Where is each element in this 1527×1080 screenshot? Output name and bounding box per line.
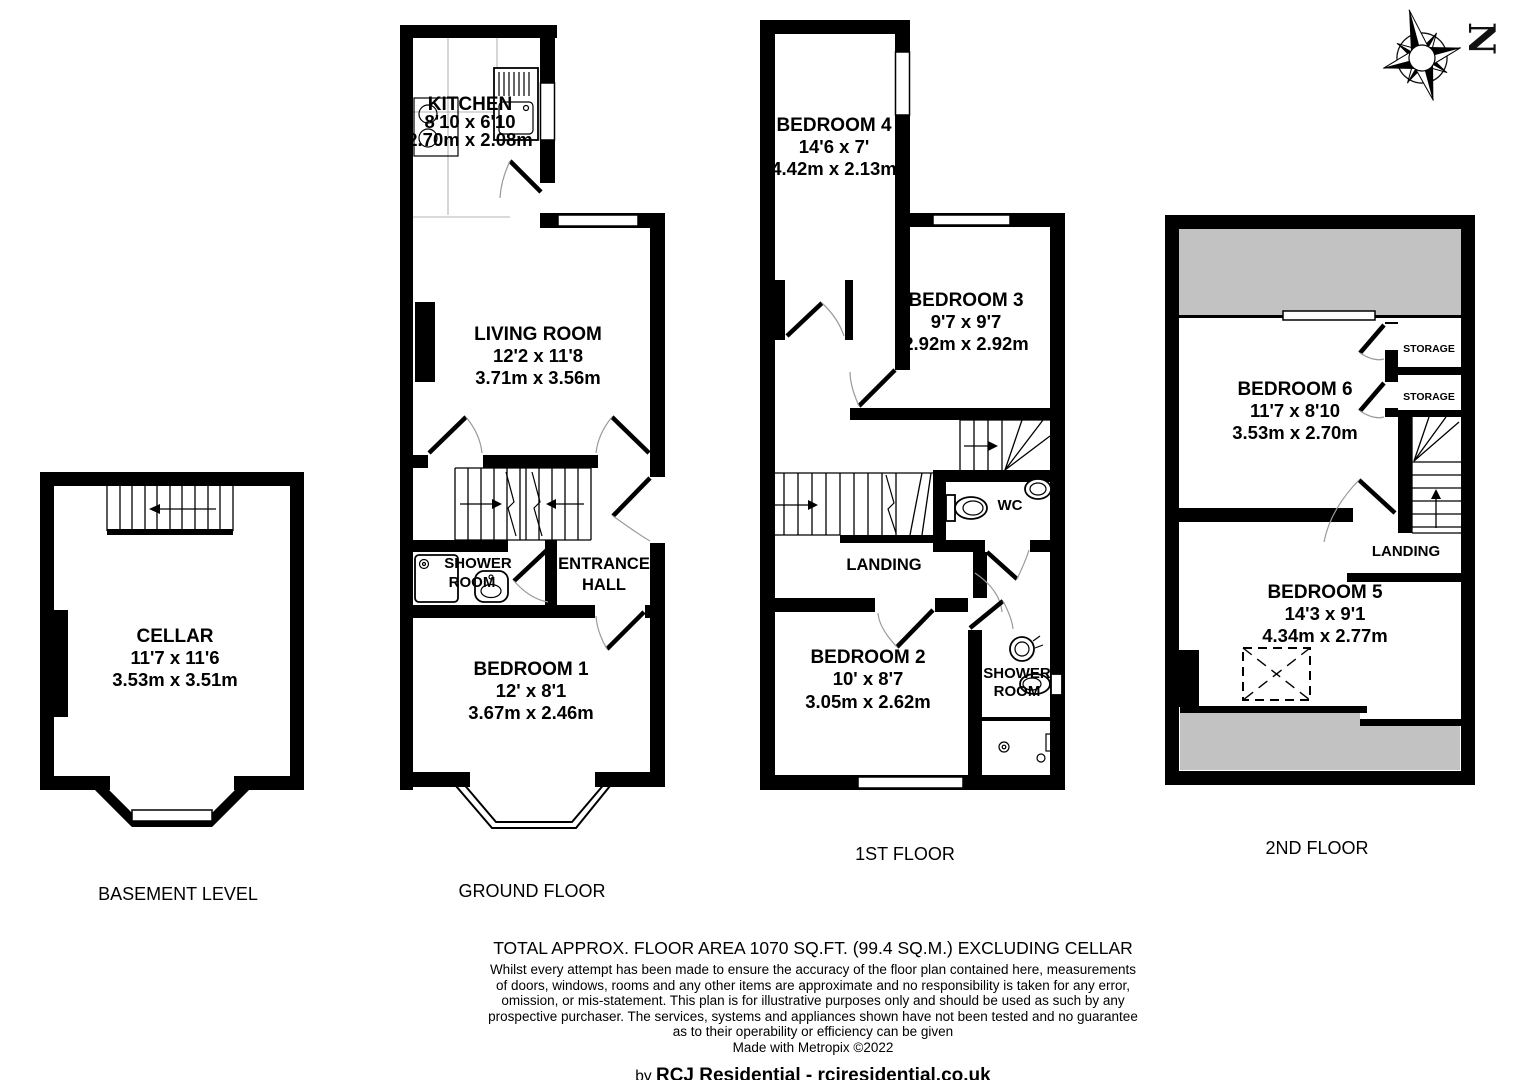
room-bedroom4-imperial: 14'6 x 7'	[799, 136, 870, 157]
restricted-headroom-area	[1179, 229, 1461, 315]
disclaimer-line: as to their operability or efficiency ca…	[263, 1024, 1363, 1040]
room-bedroom6-name: BEDROOM 6	[1237, 379, 1352, 400]
room-bedroom5-imperial: 14'3 x 9'1	[1285, 603, 1366, 624]
floorplan-first: BEDROOM 4 14'6 x 7' 4.42m x 2.13m BEDROO…	[758, 18, 1068, 793]
room-living-imperial: 12'2 x 11'8	[493, 345, 583, 366]
room-bedroom3-metric: 2.92m x 2.92m	[903, 333, 1028, 354]
room-shower2-line1: SHOWER	[983, 665, 1051, 682]
disclaimer-line: omission, or mis-statement. This plan is…	[263, 993, 1363, 1009]
first-floor-label: 1ST FLOOR	[855, 844, 955, 865]
credit-text: RCJ Residential - rcjresidential.co.uk	[656, 1065, 991, 1080]
room-storage2-name: STORAGE	[1403, 391, 1455, 403]
first-stairs-down	[770, 473, 935, 535]
basement-floor-label: BASEMENT LEVEL	[98, 884, 258, 905]
north-letter: N	[1460, 22, 1502, 55]
room-bedroom4-metric: 4.42m x 2.13m	[771, 158, 896, 179]
disclaimer-line: Whilst every attempt has been made to en…	[263, 962, 1363, 978]
credit-prefix: by	[635, 1068, 656, 1080]
room-cellar-metric: 3.53m x 3.51m	[112, 669, 237, 690]
room-landing-name: LANDING	[846, 556, 921, 574]
compass-rose	[1372, 6, 1473, 111]
total-area-text: TOTAL APPROX. FLOOR AREA 1070 SQ.FT. (99…	[263, 938, 1363, 959]
room-bedroom6-metric: 3.53m x 2.70m	[1232, 422, 1357, 443]
second-floor-label: 2ND FLOOR	[1265, 838, 1368, 859]
disclaimer-line: prospective purchaser. The services, sys…	[263, 1009, 1363, 1025]
footer: TOTAL APPROX. FLOOR AREA 1070 SQ.FT. (99…	[263, 938, 1363, 1080]
room-showerroom-line2: ROOM	[449, 574, 496, 591]
room-bedroom4-name: BEDROOM 4	[776, 115, 892, 136]
room-wc-name: WC	[998, 497, 1023, 514]
toilet-icon	[946, 495, 987, 521]
room-cellar-name: CELLAR	[136, 626, 213, 647]
floorplan-ground: KITCHEN 8'10 x 6'10 2.70m x 2.08m LIVING…	[398, 22, 668, 842]
room-entrance-line2: HALL	[582, 576, 626, 594]
ground-labels: KITCHEN 8'10 x 6'10 2.70m x 2.08m LIVING…	[407, 94, 650, 723]
drain-icon	[999, 742, 1009, 752]
room-entrance-line1: ENTRANCE	[558, 555, 650, 573]
room-bedroom1-metric: 3.67m x 2.46m	[468, 702, 593, 723]
first-stairs-up	[960, 420, 1050, 470]
room-bedroom3-imperial: 9'7 x 9'7	[931, 311, 1002, 332]
floorplan-page: CELLAR 11'7 x 11'6 3.53m x 3.51m	[0, 0, 1527, 1080]
room-bedroom1-imperial: 12' x 8'1	[496, 680, 567, 701]
ground-bay-window	[456, 782, 610, 828]
room-bedroom5-name: BEDROOM 5	[1267, 582, 1383, 603]
ground-floor-label: GROUND FLOOR	[458, 881, 605, 902]
room-storage1-name: STORAGE	[1403, 343, 1455, 355]
second-walls	[1165, 215, 1475, 785]
room-bedroom6-imperial: 11'7 x 8'10	[1250, 400, 1340, 421]
room-shower2-line2: ROOM	[994, 683, 1041, 700]
ground-stairs	[455, 468, 591, 540]
room-landing2-name: LANDING	[1372, 543, 1440, 560]
room-living-metric: 3.71m x 3.56m	[475, 367, 600, 388]
room-cellar-imperial: 11'7 x 11'6	[130, 647, 219, 668]
room-showerroom-line1: SHOWER	[444, 555, 512, 572]
room-bedroom2-metric: 3.05m x 2.62m	[805, 691, 930, 712]
room-bedroom2-imperial: 10' x 8'7	[833, 668, 904, 689]
shower-basin-icon	[1010, 636, 1043, 661]
room-bedroom2-name: BEDROOM 2	[810, 647, 925, 668]
made-with-text: Made with Metropix ©2022	[263, 1040, 1363, 1056]
room-kitchen-metric: 2.70m x 2.08m	[407, 129, 532, 150]
room-bedroom1-name: BEDROOM 1	[473, 659, 589, 680]
credit-line: by RCJ Residential - rcjresidential.co.u…	[263, 1065, 1363, 1080]
disclaimer-line: of doors, windows, rooms and any other i…	[263, 978, 1363, 994]
room-bedroom5-metric: 4.34m x 2.77m	[1262, 625, 1387, 646]
floorplan-second: BEDROOM 6 11'7 x 8'10 3.53m x 2.70m STOR…	[1163, 212, 1478, 792]
wc-basin-icon	[1025, 479, 1051, 499]
compass-icon: N	[1372, 6, 1502, 112]
room-living-name: LIVING ROOM	[474, 324, 602, 345]
floorplan-basement: CELLAR 11'7 x 11'6 3.53m x 3.51m	[38, 467, 308, 837]
room-bedroom3-name: BEDROOM 3	[908, 290, 1023, 311]
